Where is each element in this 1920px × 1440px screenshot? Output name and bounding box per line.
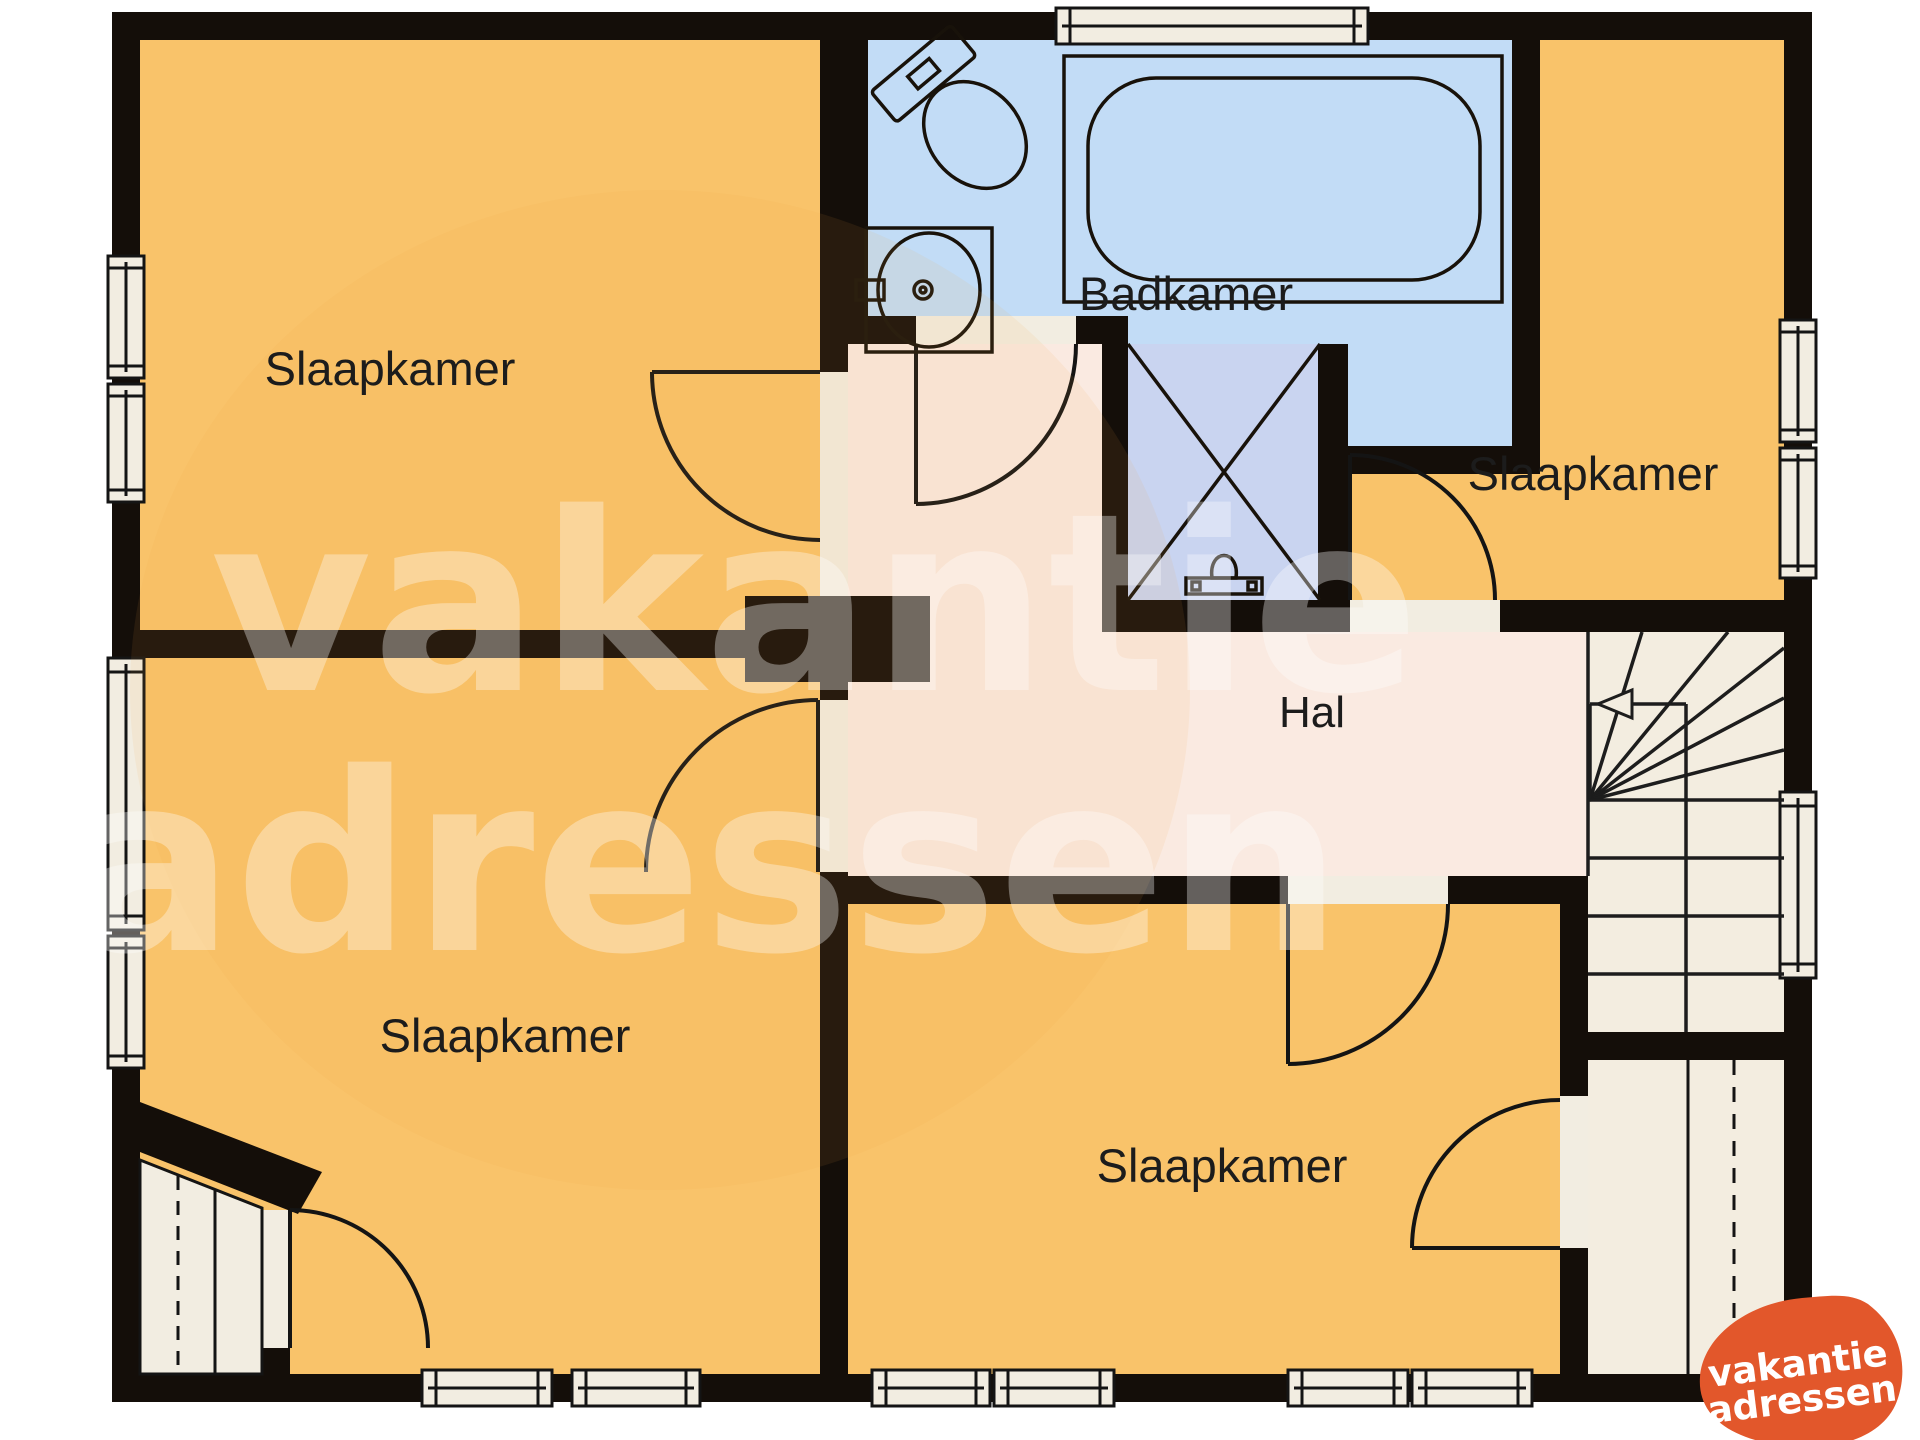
window — [572, 1370, 700, 1406]
label-bedroom-bottom-left: Slaapkamer — [380, 1009, 631, 1062]
window — [1412, 1370, 1532, 1406]
opening-bed4-right — [1560, 1096, 1588, 1248]
floorplan-canvas: vakantie adressen Slaapkamer Badkamer Sl… — [0, 0, 1920, 1440]
window — [1056, 8, 1368, 44]
label-bathroom: Badkamer — [1079, 267, 1293, 320]
wall-hall-bed4-right — [1448, 876, 1588, 904]
window — [108, 256, 144, 378]
window — [422, 1370, 552, 1406]
label-bedroom-top-left: Slaapkamer — [265, 342, 516, 395]
window — [1780, 320, 1816, 442]
watermark-line1: vakantie — [210, 461, 1420, 749]
window — [1780, 792, 1816, 978]
window — [994, 1370, 1114, 1406]
wall-dormer-stub — [262, 1348, 290, 1374]
label-bedroom-bottom-right: Slaapkamer — [1097, 1139, 1348, 1192]
window — [1780, 448, 1816, 578]
wall-bed2-bottom — [1500, 600, 1784, 632]
window — [108, 384, 144, 502]
window — [1288, 1370, 1408, 1406]
opening-dormer-closet — [262, 1210, 290, 1348]
label-bedroom-top-right: Slaapkamer — [1468, 447, 1719, 500]
label-hall: Hal — [1279, 688, 1345, 737]
watermark-line2: adressen — [67, 721, 1342, 1009]
wall-bed4-storage-top — [1560, 904, 1588, 1096]
wall-right — [1784, 12, 1812, 1402]
floorplan-page: vakantie adressen Slaapkamer Badkamer Sl… — [0, 0, 1920, 1440]
wall-bathroom-bottom-right — [1076, 316, 1128, 344]
wall-top — [112, 12, 1812, 40]
wall-bathroom-bed2 — [1512, 40, 1540, 446]
wall-stairs-storage — [1588, 1032, 1812, 1060]
window — [872, 1370, 990, 1406]
wall-bed4-storage-bottom — [1560, 1248, 1588, 1374]
